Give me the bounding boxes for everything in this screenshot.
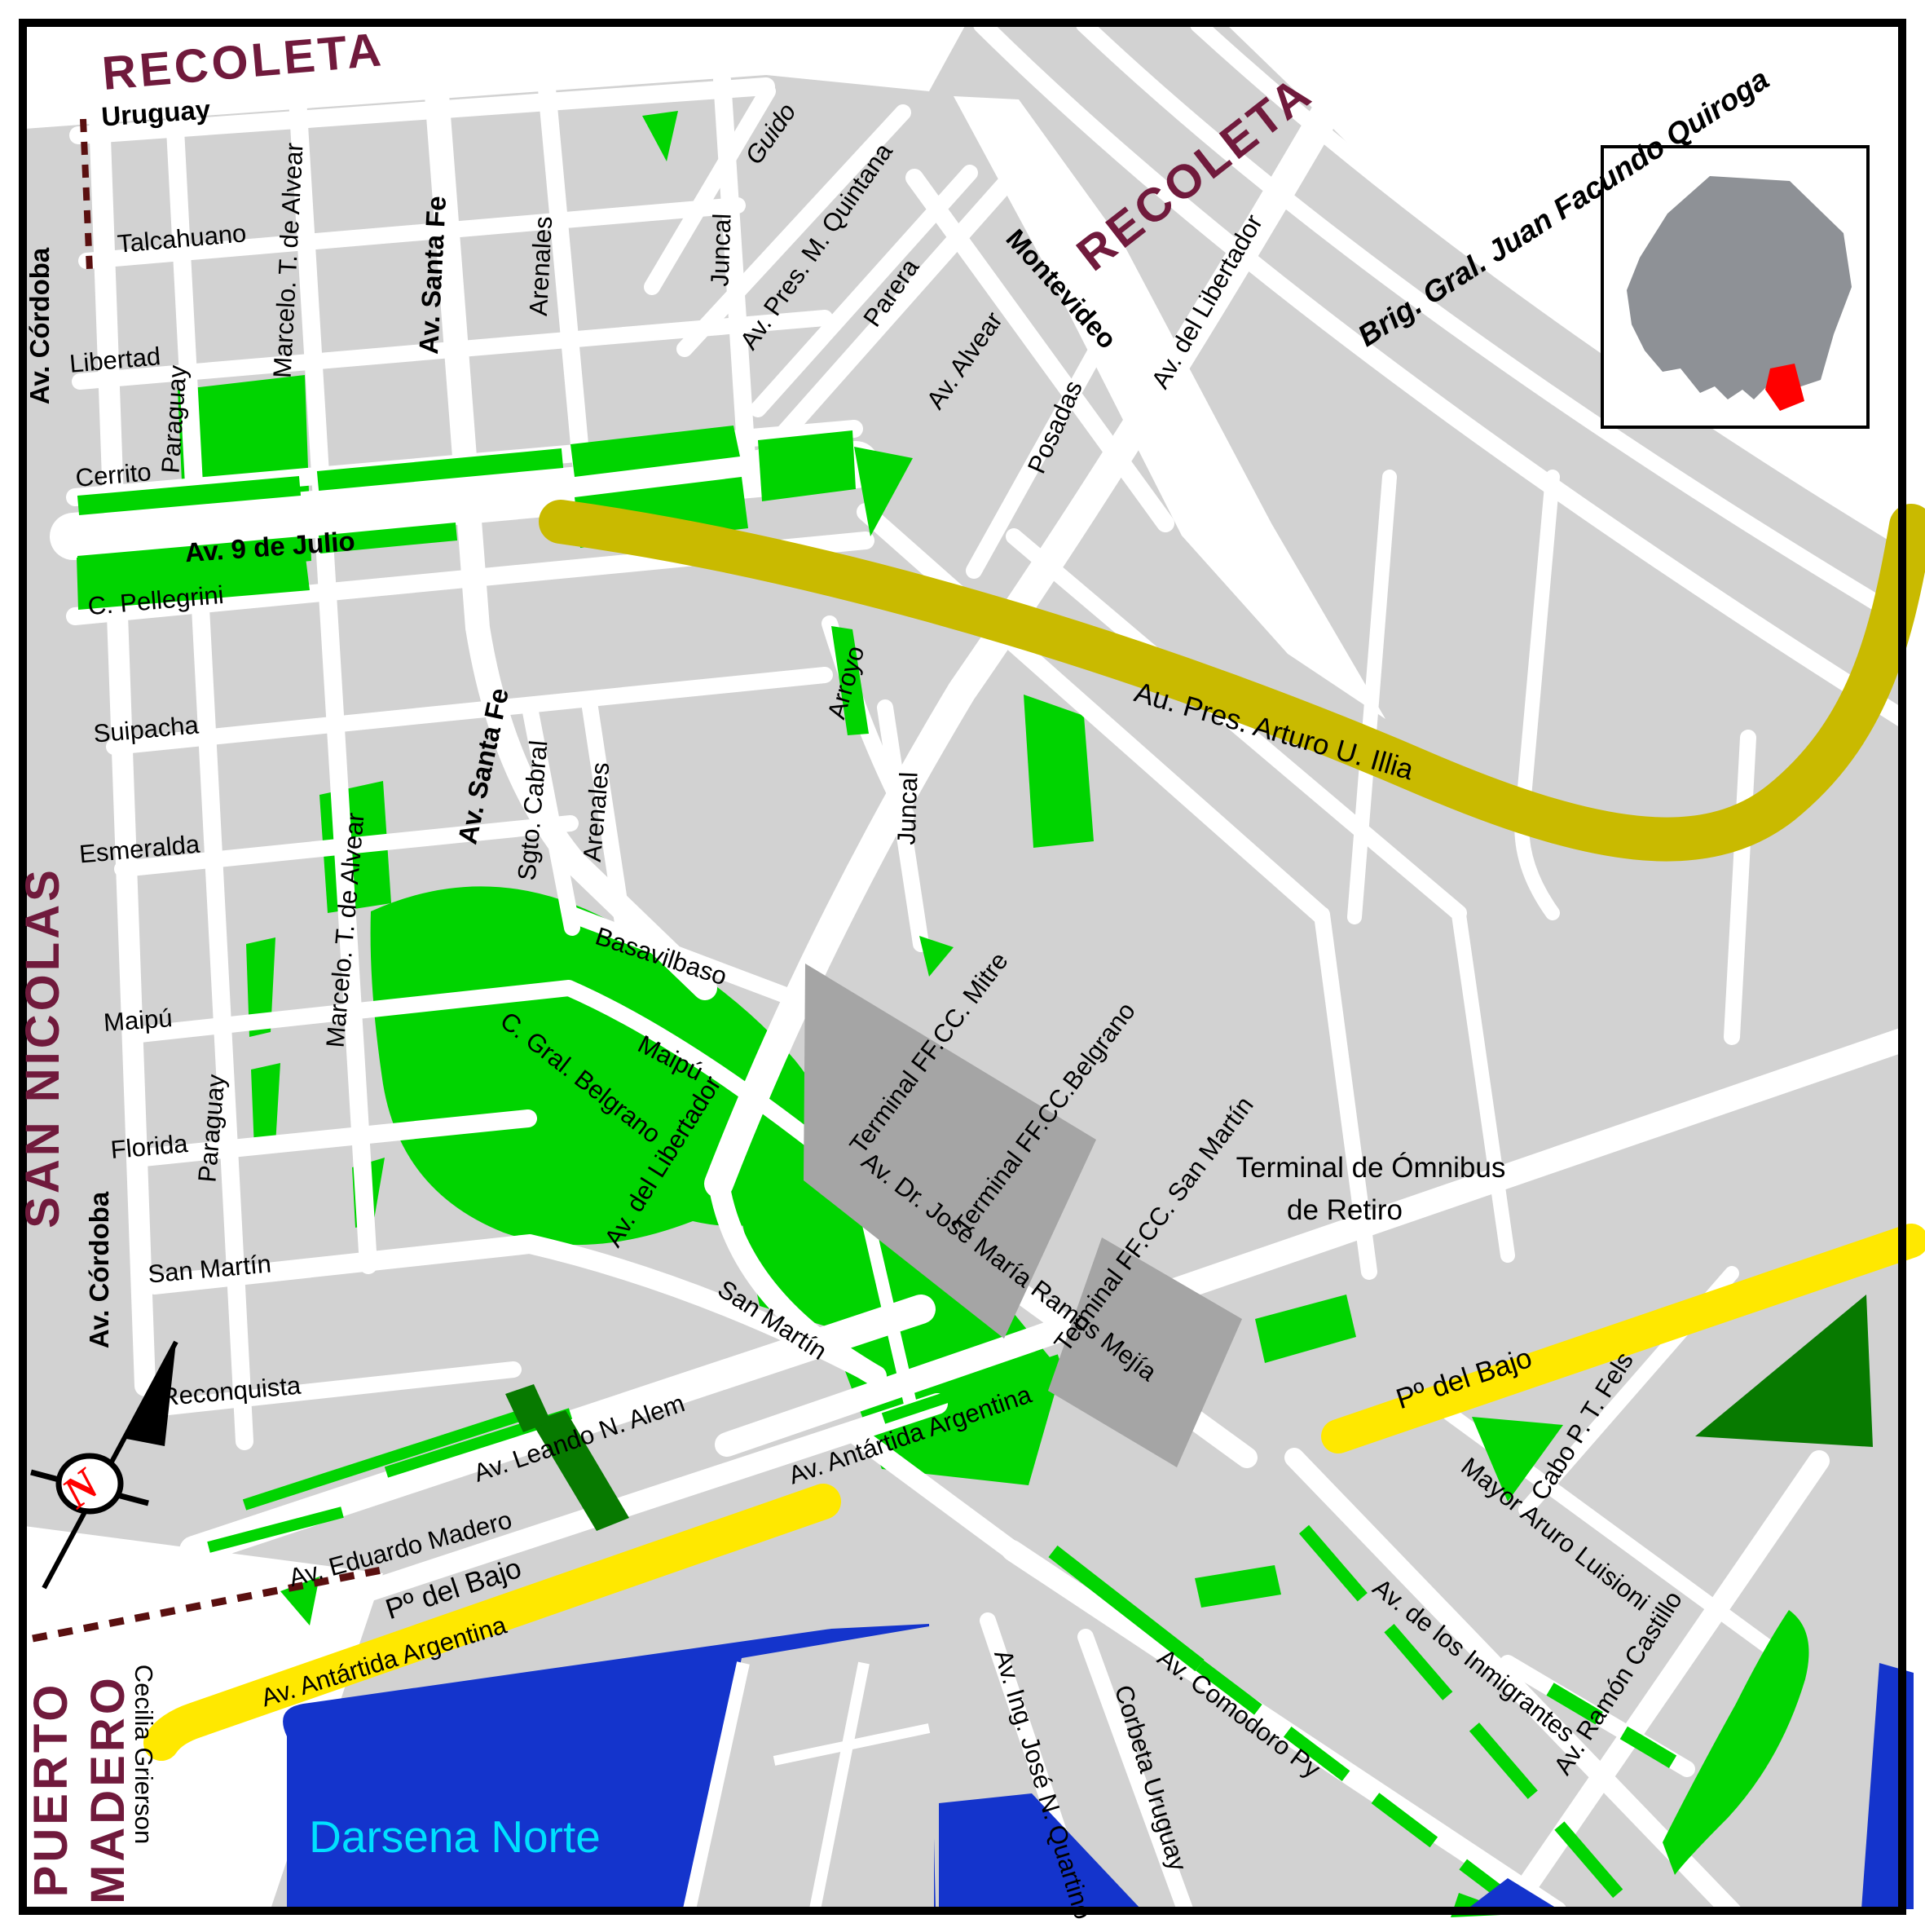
median-9julio-c3	[758, 430, 856, 501]
water-label-darsena-norte: Darsena Norte	[309, 1811, 601, 1862]
street-cecilia-grierson: Cecilia Grierson	[130, 1665, 158, 1845]
street-av-cordoba-south: Av. Córdoba	[84, 1191, 114, 1348]
street-juncal-south: Juncal	[892, 771, 923, 845]
street-arenales-north: Arenales	[524, 215, 557, 316]
map-page: RECOLETARECOLETASAN NICOLASPUERTOMADEROD…	[0, 0, 1925, 1932]
street-maipu-west: Maipú	[103, 1003, 174, 1037]
district-puerto-madero-line2: MADERO	[81, 1674, 134, 1904]
street-juncal-north: Juncal	[705, 213, 736, 287]
retiro-street-map: RECOLETARECOLETASAN NICOLASPUERTOMADEROD…	[0, 0, 1925, 1932]
omnibus-terminal-label-line1: Terminal de Ómnibus	[1236, 1152, 1506, 1184]
inset-map	[1602, 147, 1868, 427]
district-san-nicolas: SAN NICOLAS	[16, 867, 69, 1228]
district-puerto-madero-line1: PUERTO	[24, 1682, 77, 1898]
street-av-cordoba-north: Av. Córdoba	[24, 247, 55, 404]
omnibus-terminal-label-line2: de Retiro	[1287, 1194, 1403, 1226]
park-libertador-strip	[1024, 695, 1094, 848]
